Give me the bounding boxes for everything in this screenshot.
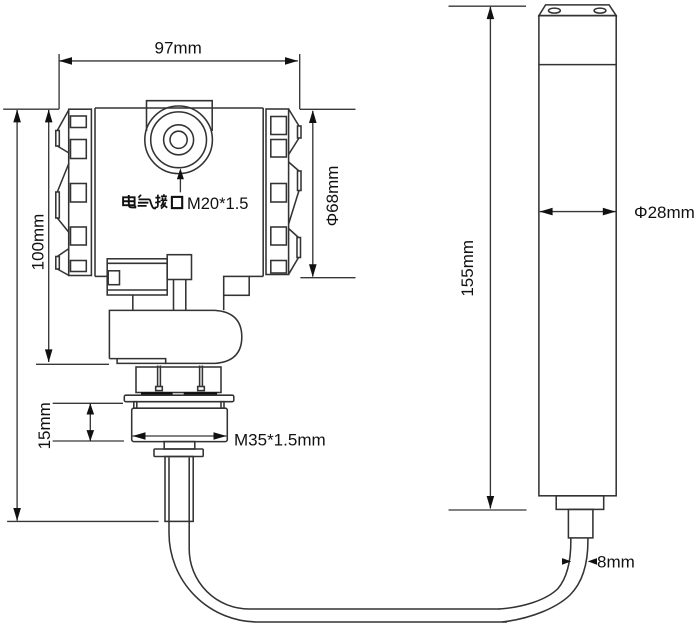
- svg-text:97mm: 97mm: [155, 39, 202, 58]
- svg-text:M20*1.5: M20*1.5: [187, 195, 248, 213]
- svg-text:155mm: 155mm: [458, 240, 477, 297]
- svg-text:100mm: 100mm: [29, 214, 48, 271]
- svg-text:Φ28mm: Φ28mm: [634, 203, 695, 222]
- svg-text:M35*1.5mm: M35*1.5mm: [234, 431, 326, 450]
- svg-text:Φ68mm: Φ68mm: [323, 166, 342, 227]
- svg-text:8mm: 8mm: [597, 553, 635, 572]
- svg-text:15mm: 15mm: [35, 402, 54, 449]
